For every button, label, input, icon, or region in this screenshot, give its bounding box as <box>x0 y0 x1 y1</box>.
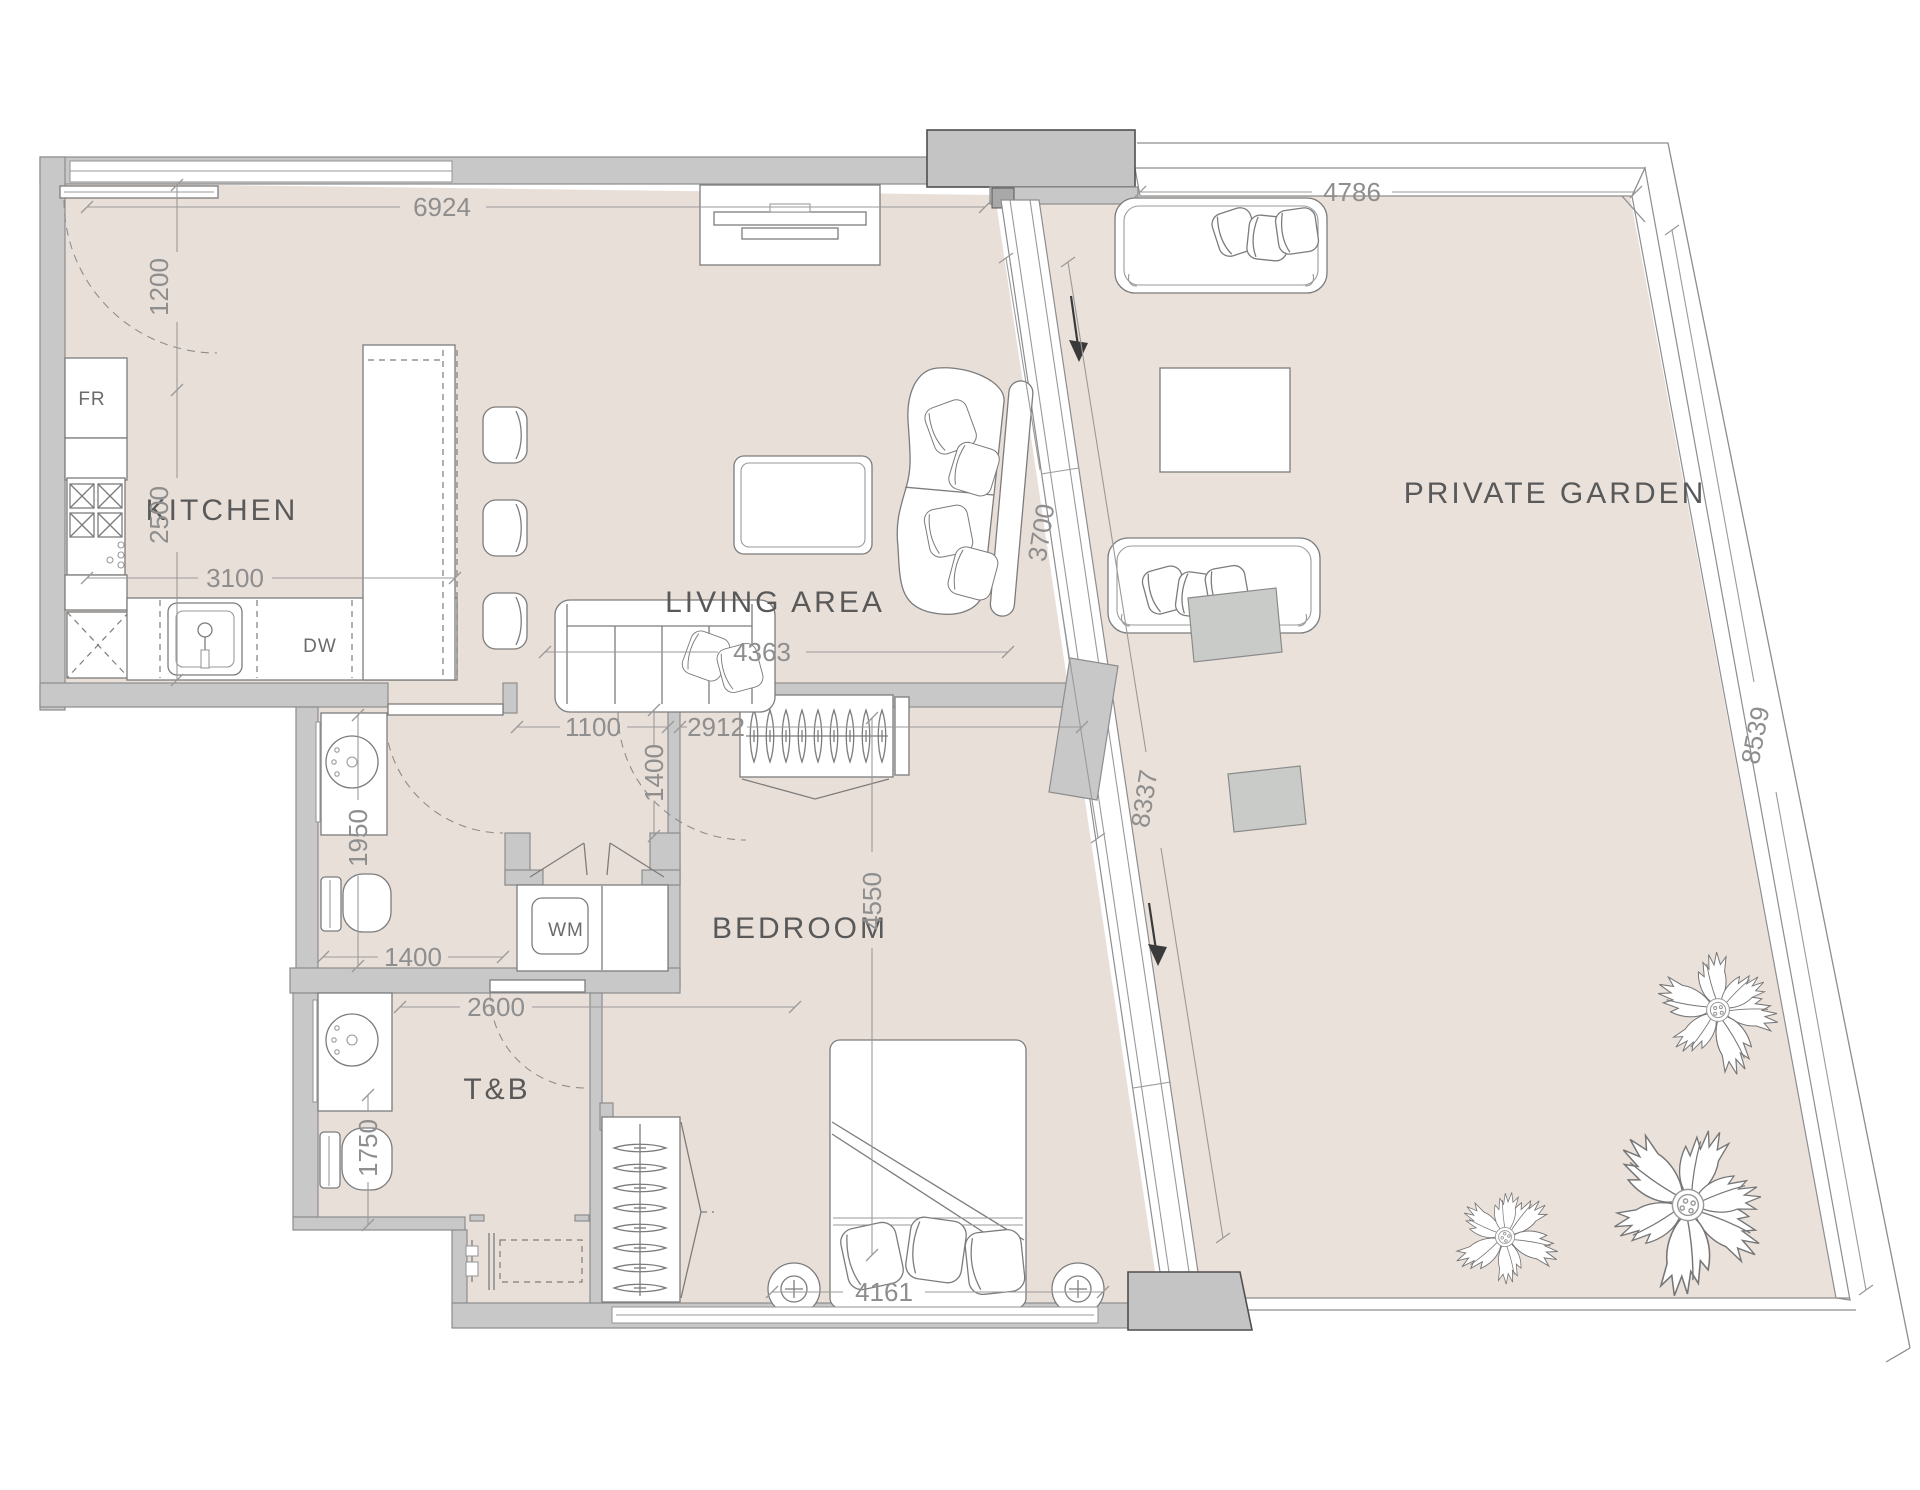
appliance-label-fridge: FR <box>78 389 105 410</box>
dim-4161: 4161 <box>855 1277 913 1307</box>
dim-6924: 6924 <box>413 192 471 222</box>
floor-plan-canvas: KITCHEN LIVING AREA BEDROOM T&B PRIVATE … <box>0 0 1920 1490</box>
bar-stool <box>483 407 527 463</box>
dim-4786: 4786 <box>1323 177 1381 207</box>
stepping-stone <box>1228 766 1306 832</box>
kitchen-sink <box>168 603 242 675</box>
kitchen-window <box>70 161 452 182</box>
dim-3100: 3100 <box>206 563 264 593</box>
dim-1100: 1100 <box>565 712 621 742</box>
dim-1400-powder: 1400 <box>384 942 442 972</box>
dim-2500: 2500 <box>144 486 174 544</box>
floor-plan-drawing: KITCHEN LIVING AREA BEDROOM T&B PRIVATE … <box>0 0 1920 1490</box>
room-label-living: LIVING AREA <box>665 586 885 619</box>
bedroom-window <box>612 1307 1098 1323</box>
stepping-stone <box>1188 588 1282 662</box>
dim-1950: 1950 <box>343 809 373 867</box>
window-base-pillar <box>1128 1272 1252 1330</box>
powder-toilet <box>321 874 391 932</box>
bed <box>830 1040 1026 1308</box>
bar-stool <box>483 593 527 649</box>
shaft <box>67 612 129 678</box>
appliance-label-washer: WM <box>548 920 584 941</box>
dim-2600: 2600 <box>467 992 525 1022</box>
appliance-label-dishwasher: DW <box>303 636 337 657</box>
dim-4363: 4363 <box>733 637 791 667</box>
dim-4550: 4550 <box>857 872 887 930</box>
coffee-table <box>734 456 872 554</box>
tv-console <box>700 185 880 265</box>
room-label-garden: PRIVATE GARDEN <box>1404 477 1707 510</box>
dim-1200: 1200 <box>144 258 174 316</box>
dim-1750: 1750 <box>353 1119 383 1177</box>
garden-table <box>1160 368 1290 472</box>
dim-1400-hall: 1400 <box>639 744 669 802</box>
bar-stool <box>483 500 527 556</box>
room-label-bath: T&B <box>463 1073 530 1106</box>
kitchen-island <box>363 345 457 680</box>
dim-2912: 2912 <box>687 712 745 742</box>
sofa-curved <box>890 365 1034 621</box>
